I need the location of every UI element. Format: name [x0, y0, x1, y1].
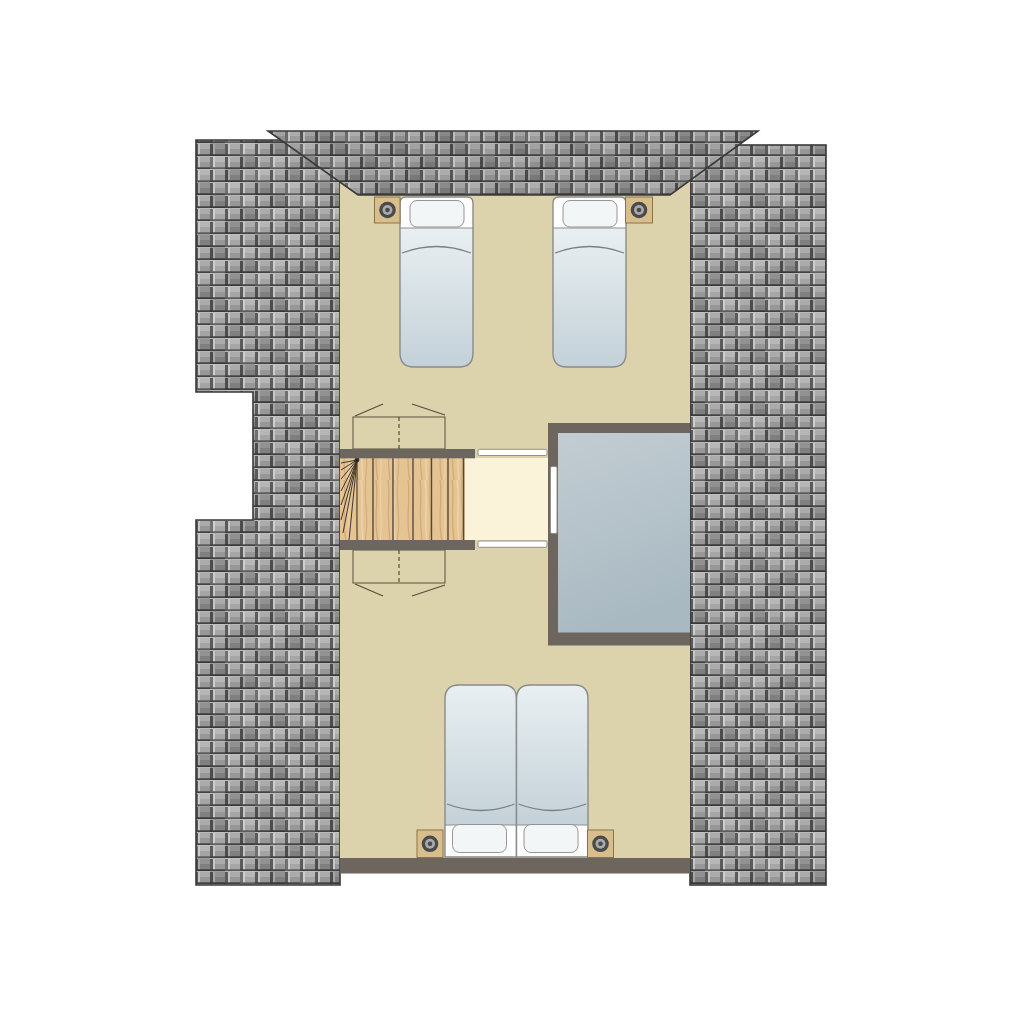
double-bed-right-mattress [517, 685, 589, 857]
stairwell-void [548, 423, 690, 646]
bottom-exterior-wall [340, 858, 690, 874]
ceiling-spot-bottom-right [588, 830, 614, 858]
ceiling-spot-bottom-left [417, 830, 443, 858]
floor-plan-canvas [0, 0, 1024, 1024]
winder-center-dot [355, 458, 360, 463]
bed-blanket [517, 685, 589, 825]
bed-blanket [400, 228, 473, 367]
pillow [524, 825, 578, 853]
single-bed-top-right [553, 197, 626, 367]
ceiling-spot-top-right [626, 197, 653, 223]
landing-railing-upper [478, 449, 547, 455]
stairwell-wall-upper [340, 449, 475, 458]
double-bed-left-mattress [445, 685, 517, 857]
stairwell-wall-lower [340, 540, 475, 550]
right-roof-slope [690, 145, 826, 885]
staircase [340, 458, 465, 540]
stair-flight [340, 458, 465, 540]
spot-ring-center [598, 842, 603, 847]
bed-blanket [445, 685, 517, 825]
single-bed-top-left [400, 197, 473, 367]
stair-landing-floor [465, 458, 548, 540]
void-opening [558, 433, 690, 633]
attic-floor-plan [0, 0, 1024, 1024]
pillow [453, 825, 507, 853]
bed-blanket [553, 228, 626, 367]
pillow [410, 201, 464, 228]
spot-ring-center [428, 842, 433, 847]
spot-ring-center [385, 208, 390, 213]
landing-railing-lower [478, 541, 547, 547]
left-roof-slope [196, 140, 340, 885]
spot-ring-center [637, 208, 642, 213]
ceiling-spot-top-left [375, 197, 401, 223]
void-railing [551, 467, 558, 534]
pillow [563, 201, 617, 228]
